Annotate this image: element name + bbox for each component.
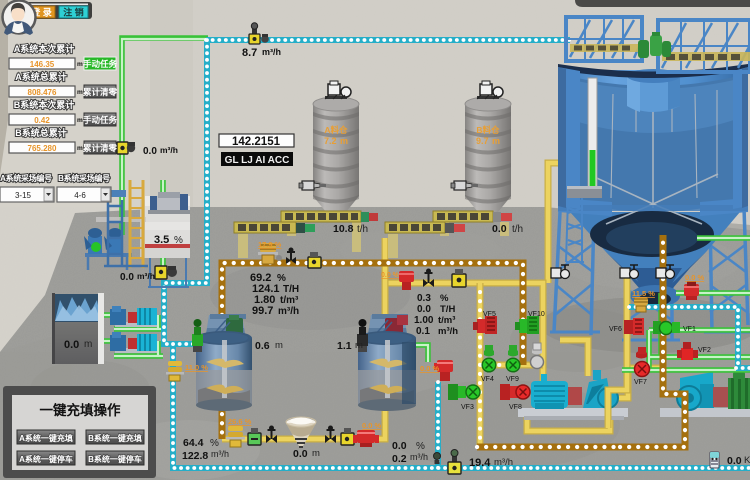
svg-text:t/m³: t/m³ (438, 315, 455, 326)
svg-text:0.0 %: 0.0 % (362, 421, 382, 430)
svg-text:%: % (440, 293, 449, 304)
svg-text:手动任务: 手动任务 (83, 115, 118, 125)
svg-text:m: m (84, 339, 92, 350)
svg-text:17.9 %: 17.9 % (258, 240, 282, 249)
svg-text:122.8: 122.8 (182, 450, 208, 462)
svg-text:0.0: 0.0 (120, 272, 134, 283)
svg-text:0.0 %: 0.0 % (685, 273, 705, 282)
svg-text:19.4: 19.4 (469, 457, 491, 469)
svg-text:0.2: 0.2 (392, 453, 407, 465)
svg-text:142.2151: 142.2151 (232, 136, 281, 148)
svg-text:7.2 m: 7.2 m (324, 136, 348, 146)
svg-text:1.1: 1.1 (337, 340, 352, 352)
svg-text:0.0: 0.0 (293, 448, 308, 460)
svg-text:808.476: 808.476 (28, 88, 57, 97)
svg-text:VF6: VF6 (609, 326, 622, 333)
svg-text:m³/h: m³/h (494, 457, 513, 468)
svg-text:B料仓: B料仓 (476, 125, 500, 135)
svg-text:t/h: t/h (512, 224, 523, 235)
svg-text:m: m (312, 448, 320, 459)
svg-text:0.0: 0.0 (727, 455, 742, 467)
svg-text:0.0 %: 0.0 % (420, 364, 440, 373)
svg-text:A系统一键停车: A系统一键停车 (19, 454, 73, 464)
svg-text:%: % (174, 235, 183, 246)
svg-text:0.6: 0.6 (255, 340, 270, 352)
svg-text:11.0 %: 11.0 % (185, 363, 208, 372)
svg-text:T/H: T/H (283, 284, 299, 295)
svg-text:VF5: VF5 (483, 311, 496, 318)
svg-text:A系统本次累计: A系统本次累计 (14, 43, 75, 54)
svg-text:26.6 %: 26.6 % (228, 417, 252, 426)
svg-text:VF3: VF3 (461, 404, 474, 411)
svg-text:4-6: 4-6 (74, 191, 86, 200)
svg-text:11.5 %: 11.5 % (632, 289, 655, 298)
svg-text:1.00: 1.00 (414, 315, 434, 326)
svg-text:m³/h: m³/h (137, 271, 155, 281)
svg-text:Kp: Kp (744, 455, 750, 466)
svg-text:手动任务: 手动任务 (83, 59, 118, 69)
svg-text:VF1: VF1 (683, 326, 696, 333)
svg-text:m: m (275, 340, 283, 351)
svg-text:A系统一键充填: A系统一键充填 (19, 433, 73, 443)
svg-text:累计清零: 累计清零 (83, 87, 118, 97)
svg-text:0.0: 0.0 (143, 146, 157, 157)
svg-text:m³/h: m³/h (262, 47, 281, 57)
svg-text:0.0: 0.0 (492, 223, 507, 235)
svg-text:A系统总累计: A系统总累计 (15, 71, 67, 82)
svg-text:0.0 %: 0.0 % (381, 272, 400, 279)
svg-text:m³/h: m³/h (410, 452, 428, 462)
svg-text:m: m (355, 340, 363, 351)
svg-text:一键充填操作: 一键充填操作 (40, 402, 121, 418)
svg-text:m³/h: m³/h (211, 449, 229, 459)
svg-text:VF7: VF7 (634, 379, 647, 386)
svg-text:9.7 m: 9.7 m (476, 136, 500, 146)
svg-text:3.5: 3.5 (154, 234, 169, 246)
svg-text:0.42: 0.42 (34, 116, 50, 125)
svg-text:765.280: 765.280 (28, 144, 57, 153)
svg-text:m³/h: m³/h (278, 306, 299, 317)
svg-text:VF8: VF8 (509, 404, 522, 411)
svg-text:64.4: 64.4 (183, 437, 204, 449)
svg-text:GL LJ AI ACC: GL LJ AI ACC (225, 155, 290, 166)
svg-text:VF9: VF9 (506, 376, 519, 383)
svg-text:B系统一键充填: B系统一键充填 (88, 433, 142, 443)
svg-text:8.7: 8.7 (242, 47, 257, 59)
svg-text:B系统一键停车: B系统一键停车 (88, 454, 142, 464)
svg-text:T/H: T/H (440, 304, 455, 315)
svg-text:B系统采场编号: B系统采场编号 (58, 173, 110, 183)
svg-text:VF2: VF2 (698, 347, 711, 354)
svg-text:VF10: VF10 (528, 311, 545, 318)
svg-text:0.3: 0.3 (417, 293, 431, 304)
svg-text:t/h: t/h (357, 224, 368, 235)
svg-text:3-15: 3-15 (15, 191, 32, 200)
svg-text:0.1: 0.1 (416, 326, 430, 337)
svg-text:B系统总累计: B系统总累计 (15, 127, 67, 138)
svg-text:146.35: 146.35 (30, 60, 55, 69)
svg-text:0.0: 0.0 (392, 440, 407, 452)
svg-text:注 销: 注 销 (63, 7, 84, 18)
svg-text:%: % (210, 438, 219, 449)
svg-text:99.7: 99.7 (252, 305, 273, 317)
svg-text:累计清零: 累计清零 (83, 143, 118, 153)
svg-text:0.0: 0.0 (64, 339, 79, 351)
svg-text:VF4: VF4 (481, 376, 494, 383)
svg-text:10.8: 10.8 (333, 223, 354, 235)
svg-text:m³/h: m³/h (438, 326, 458, 337)
svg-text:m³/h: m³/h (160, 145, 178, 155)
svg-text:%: % (416, 441, 425, 452)
svg-text:A料仓: A料仓 (324, 125, 348, 135)
svg-text:t/m³: t/m³ (280, 295, 299, 306)
svg-text:0.0: 0.0 (417, 304, 431, 315)
svg-text:A系统采场编号: A系统采场编号 (0, 173, 52, 183)
svg-text:B系统本次累计: B系统本次累计 (14, 99, 75, 110)
